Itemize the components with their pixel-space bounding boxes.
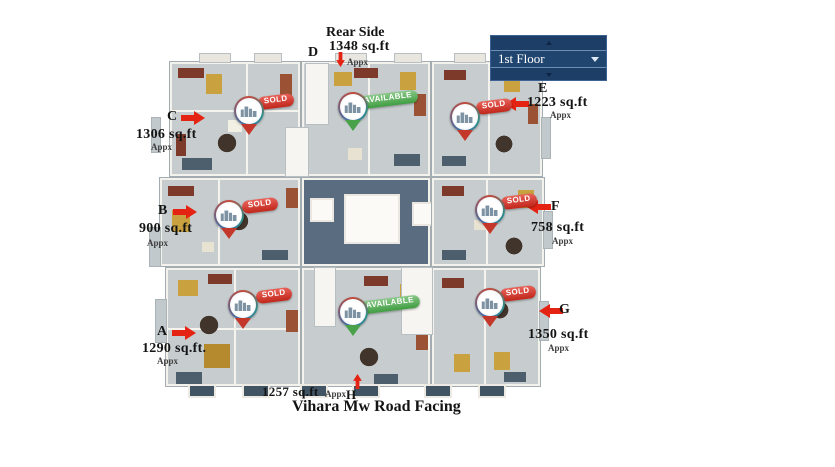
- unit-c-letter: C: [167, 109, 177, 125]
- unit-h-area: 1257 sq.ft: [262, 384, 318, 400]
- caret-down-icon: [546, 73, 552, 77]
- unit-a-area: 1290 sq.ft.: [142, 341, 206, 357]
- pin-tail: [482, 316, 498, 327]
- building-icon: [481, 297, 499, 309]
- floor-selector-value: 1st Floor: [498, 51, 591, 67]
- unit-a-arrow-icon: [172, 326, 196, 340]
- building-icon: [481, 204, 499, 216]
- unit-h-arrow-icon: [347, 369, 362, 390]
- unit-g-area: 1350 sq.ft: [528, 327, 589, 343]
- unit-b-approx: Appx: [147, 238, 168, 248]
- roof-notch: [455, 54, 485, 62]
- unit-b-pin[interactable]: [214, 200, 244, 239]
- unit-e-approx: Appx: [550, 110, 571, 120]
- unit-h-pin[interactable]: [338, 297, 368, 336]
- building-icon: [344, 101, 362, 113]
- roof-notch: [255, 54, 281, 62]
- balcony: [478, 384, 506, 398]
- balcony: [188, 384, 216, 398]
- unit-f-letter: F: [551, 199, 560, 215]
- light-shaft: [286, 128, 308, 176]
- unit-e-area: 1223 sq.ft: [527, 95, 588, 111]
- unit-d-arrow-icon: [331, 52, 346, 73]
- floor-selector-selected-row[interactable]: 1st Floor: [491, 50, 606, 68]
- unit-g-letter: G: [559, 302, 570, 318]
- building-icon: [220, 209, 238, 221]
- pin-tail: [345, 325, 361, 336]
- unit-h-approx: Appx: [325, 389, 346, 399]
- lift-shaft: [346, 196, 398, 242]
- caret-up-icon: [546, 41, 552, 45]
- unit-b-letter: B: [158, 203, 167, 219]
- pin-tail: [235, 318, 251, 329]
- unit-f-area: 758 sq.ft: [531, 220, 584, 236]
- unit-b-arrow-icon: [173, 205, 197, 219]
- unit-c-approx: Appx: [151, 142, 172, 152]
- unit-g-approx: Appx: [548, 343, 569, 353]
- unit-a-pin[interactable]: [228, 290, 258, 329]
- roof-notch: [200, 54, 230, 62]
- building-icon: [234, 299, 252, 311]
- building-icon: [456, 111, 474, 123]
- pin-tail: [241, 124, 257, 135]
- floor-selector-dropdown[interactable]: 1st Floor: [490, 35, 607, 81]
- unit-f-pin[interactable]: [475, 195, 505, 234]
- unit-g-pin[interactable]: [475, 288, 505, 327]
- unit-a-approx: Appx: [157, 356, 178, 366]
- unit-b-area: 900 sq.ft: [139, 221, 192, 237]
- wall-stub: [542, 118, 550, 158]
- pin-tail: [482, 223, 498, 234]
- unit-e-pin[interactable]: [450, 102, 480, 141]
- unit-d-pin[interactable]: [338, 92, 368, 131]
- building-icon: [344, 306, 362, 318]
- unit-d-letter: D: [308, 45, 318, 61]
- pin-tail: [345, 120, 361, 131]
- unit-c-arrow-icon: [181, 111, 205, 125]
- light-shaft: [306, 64, 328, 124]
- light-shaft: [315, 268, 335, 326]
- unit-c-pin[interactable]: [234, 96, 264, 135]
- pin-tail: [457, 130, 473, 141]
- unit-c-area: 1306 sq.ft: [136, 127, 197, 143]
- pin-tail: [221, 228, 237, 239]
- dropdown-scroll-up[interactable]: [491, 36, 606, 50]
- building-icon: [240, 105, 258, 117]
- unit-a-letter: A: [157, 324, 167, 340]
- balcony: [424, 384, 452, 398]
- road-facing-label: Vihara Mw Road Facing: [292, 398, 461, 416]
- caret-down-icon: [591, 57, 599, 62]
- unit-f-approx: Appx: [552, 236, 573, 246]
- roof-notch: [395, 54, 421, 62]
- dropdown-scroll-down[interactable]: [491, 68, 606, 82]
- stair-shaft: [312, 200, 332, 220]
- floorplan-page: 1st Floor Rear Side Vihara Mw Road Facin…: [0, 0, 835, 467]
